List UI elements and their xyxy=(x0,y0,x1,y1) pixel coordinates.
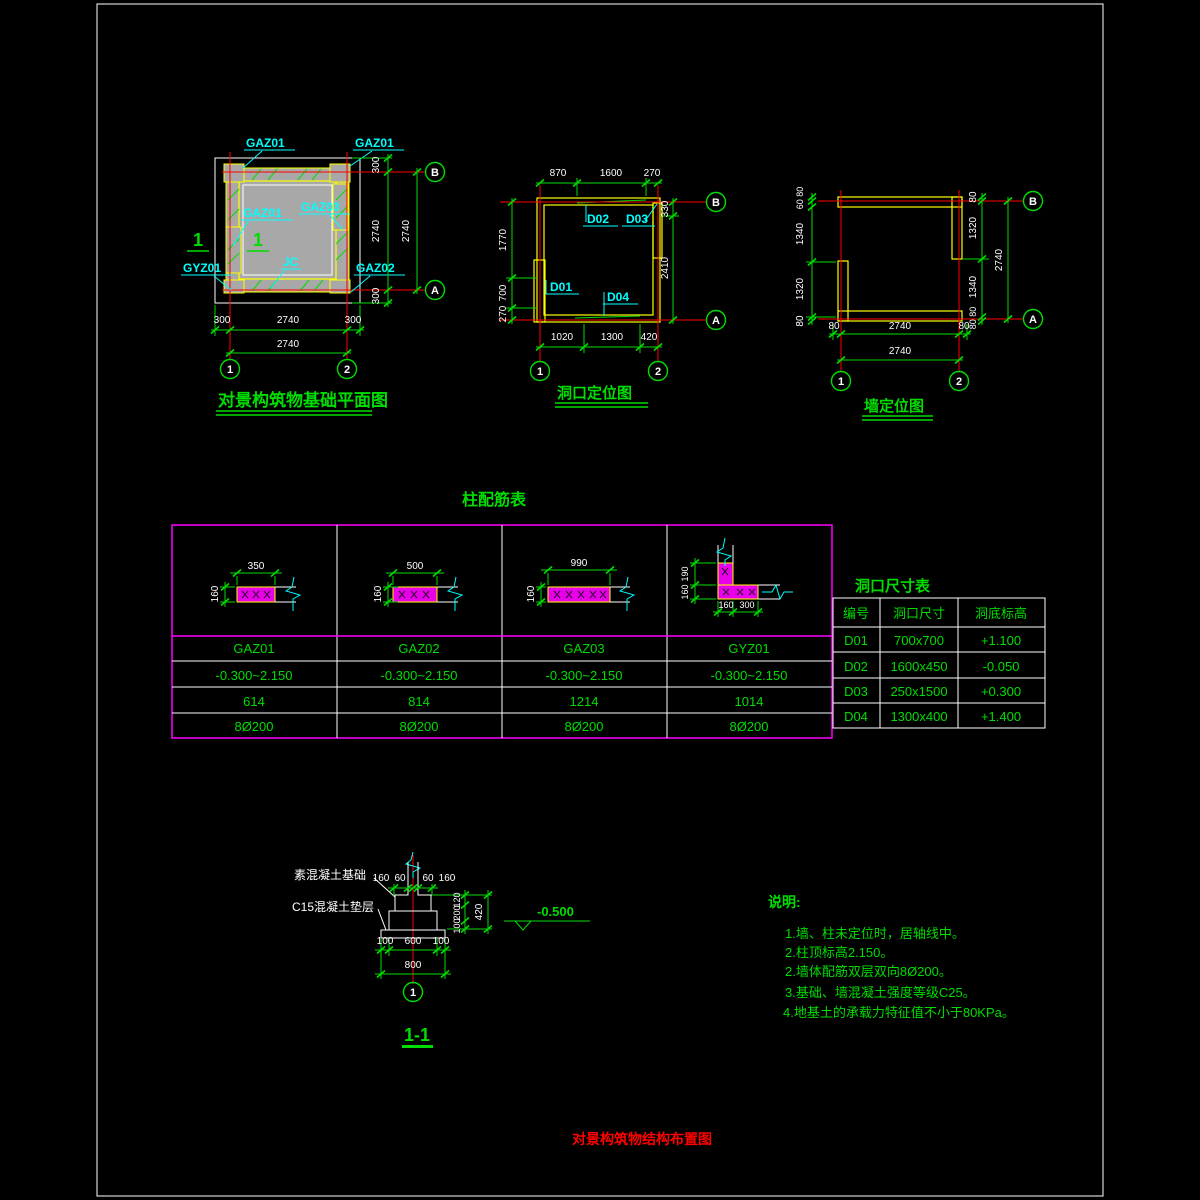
dim-top-1600: 1600 xyxy=(600,168,623,179)
note-item-2: 2.柱顶标高2.150。 xyxy=(785,945,893,960)
cell-name: GYZ01 xyxy=(728,641,769,656)
section-detail: 素混凝土基础 C15混凝土垫层 160 60 60 160 120 xyxy=(292,852,590,1048)
axis-1: 1 xyxy=(838,376,844,388)
cell-bars: 614 xyxy=(243,694,265,709)
dim-bot-420: 420 xyxy=(641,332,658,343)
cell-bars: 814 xyxy=(408,694,430,709)
column-table-title: 柱配筋表 xyxy=(462,490,527,509)
dim-420: 420 xyxy=(474,903,485,920)
label-gaz02: GAZ02 xyxy=(356,261,395,275)
dim-bot-300-r: 300 xyxy=(345,315,362,326)
dim-300: 300 xyxy=(739,600,754,610)
dim-right-80: 80 xyxy=(968,191,979,203)
dim-bot-2740: 2740 xyxy=(277,315,300,326)
dim-top-270: 270 xyxy=(644,168,661,179)
cell-bars: 1014 xyxy=(735,694,764,709)
opening-plan-title: 洞口定位图 xyxy=(557,384,632,402)
cell-stirrups: 8Ø200 xyxy=(729,719,768,734)
dim-100: 100 xyxy=(452,918,462,933)
axis-1: 1 xyxy=(537,366,543,378)
dim-left-1320: 1320 xyxy=(795,277,806,300)
header-size: 洞口尺寸 xyxy=(893,606,945,621)
opening-size-table: 洞口尺寸表 编号 洞口尺寸 洞底标高 D01 700x700 +1.100 D0… xyxy=(833,577,1045,728)
cell-elev: +1.400 xyxy=(981,709,1021,724)
section-title-underline xyxy=(402,1045,433,1048)
note-item-3: 2.墙体配筋双层双向8Ø200。 xyxy=(785,964,952,979)
cell-range: -0.300~2.150 xyxy=(381,668,458,683)
dim-left-60-80: 60 80 xyxy=(795,187,805,210)
dim-top-870: 870 xyxy=(550,168,567,179)
break-symbol xyxy=(286,577,300,611)
axis-b: B xyxy=(1029,196,1037,208)
cell-range: -0.300~2.150 xyxy=(546,668,623,683)
wall-plan: 60 80 1340 1320 80 80 1320 1340 80 80 27… xyxy=(795,187,1043,420)
dim-right-1340: 1340 xyxy=(968,275,979,298)
axis-lines xyxy=(818,190,1023,371)
cell-elev: -0.050 xyxy=(983,659,1020,674)
cell-size: 1300x400 xyxy=(890,709,947,724)
label-gyz01: GYZ01 xyxy=(183,261,221,275)
header-elev: 洞底标高 xyxy=(975,606,1027,621)
axis-a: A xyxy=(712,315,720,327)
break-symbol-right xyxy=(762,585,793,599)
dim-160-r: 160 xyxy=(439,873,456,884)
axis-1: 1 xyxy=(227,364,233,376)
dim-120: 120 xyxy=(452,892,462,907)
label-d02: D02 xyxy=(587,212,609,226)
foundation-plan: GAZ01 GAZ01 GAZ01 GAZ03 JC GYZ01 GAZ02 1… xyxy=(181,136,445,415)
label-d03: D03 xyxy=(626,212,648,226)
axis-a: A xyxy=(431,285,439,297)
label-gaz01-mid: GAZ01 xyxy=(243,206,282,220)
dim-190: 190 xyxy=(680,566,690,581)
dim-ticks xyxy=(377,885,492,978)
dim-right-330: 330 xyxy=(660,200,671,217)
note-item-5: 4.地基土的承载力特征值不小于80KPa。 xyxy=(783,1005,1015,1020)
wall-plan-title: 墙定位图 xyxy=(864,397,924,415)
dim-bot-300-l: 300 xyxy=(214,315,231,326)
label-jc: JC xyxy=(283,255,299,269)
cell-stirrups: 8Ø200 xyxy=(564,719,603,734)
dim-350: 350 xyxy=(248,561,265,572)
cad-drawing: GAZ01 GAZ01 GAZ01 GAZ03 JC GYZ01 GAZ02 1… xyxy=(0,0,1200,1200)
cell-id: D04 xyxy=(844,709,868,724)
cell-range: -0.300~2.150 xyxy=(711,668,788,683)
cell-range: -0.300~2.150 xyxy=(216,668,293,683)
label-gaz03: GAZ03 xyxy=(301,200,340,214)
cell-id: D03 xyxy=(844,684,868,699)
dim-bot-1300: 1300 xyxy=(601,332,624,343)
dim-left-270: 270 xyxy=(498,305,509,322)
label-d01: D01 xyxy=(550,280,572,294)
dim-left-700: 700 xyxy=(498,284,509,301)
cell-elev: +0.300 xyxy=(981,684,1021,699)
dim-right-2410: 2410 xyxy=(660,256,671,279)
break-symbol-top xyxy=(717,538,731,566)
note-item-1: 1.墙、柱未定位时，居轴线中。 xyxy=(785,926,965,941)
gyz01-diagram: 190 160 160 300 xyxy=(680,538,793,617)
dim-160h: 160 xyxy=(718,600,733,610)
notes-title: 说明: xyxy=(768,894,801,910)
header-id: 编号 xyxy=(843,606,869,621)
axis-bubbles: B A 1 2 xyxy=(832,192,1043,391)
dim-left-1770: 1770 xyxy=(498,228,509,251)
dim-160: 160 xyxy=(373,585,384,602)
label-leaders xyxy=(374,878,395,930)
notes: 说明: 1.墙、柱未定位时，居轴线中。 2.柱顶标高2.150。 2.墙体配筋双… xyxy=(768,894,1015,1020)
cell-size: 1600x450 xyxy=(890,659,947,674)
axis-1: 1 xyxy=(410,987,416,999)
dim-160: 160 xyxy=(210,585,221,602)
cell-id: D02 xyxy=(844,659,868,674)
gaz03-diagram: 990 160 xyxy=(526,558,634,611)
cell-size: 700x700 xyxy=(894,633,944,648)
column-table: 柱配筋表 350 160 xyxy=(172,490,832,738)
section-mark-1-left: 1 xyxy=(193,230,203,250)
dim-100-r: 100 xyxy=(433,936,450,947)
wall-segments xyxy=(838,197,962,321)
axis-a: A xyxy=(1029,314,1037,326)
axis-b: B xyxy=(431,167,439,179)
section-mark-1-inner: 1 xyxy=(253,230,263,250)
dim-right-2740: 2740 xyxy=(371,219,382,242)
level-text: -0.500 xyxy=(537,904,574,919)
dim-200: 200 xyxy=(452,905,462,920)
cell-stirrups: 8Ø200 xyxy=(399,719,438,734)
axis-2: 2 xyxy=(956,376,962,388)
dim-right-total: 2740 xyxy=(994,248,1005,271)
dim-100-l: 100 xyxy=(377,936,394,947)
axis-b: B xyxy=(712,197,720,209)
dim-left-80: 80 xyxy=(795,315,806,327)
cell-name: GAZ02 xyxy=(398,641,439,656)
dim-bot-total: 2740 xyxy=(889,346,912,357)
break-symbol xyxy=(448,577,462,611)
cell-bars: 1214 xyxy=(570,694,599,709)
cell-id: D01 xyxy=(844,633,868,648)
dim-bot-2740: 2740 xyxy=(889,321,912,332)
dim-500: 500 xyxy=(407,561,424,572)
dim-right-300-bot: 300 xyxy=(371,287,382,304)
dim-bot-80-l: 80 xyxy=(828,321,840,332)
dim-60-l: 60 xyxy=(394,873,406,884)
axis-2: 2 xyxy=(344,364,350,376)
cell-stirrups: 8Ø200 xyxy=(234,719,273,734)
sheet-title: 对景构筑物结构布置图 xyxy=(572,1131,712,1147)
label-cushion: C15混凝土垫层 xyxy=(292,899,374,914)
label-footing: 素混凝土基础 xyxy=(294,867,366,882)
label-d04: D04 xyxy=(607,290,629,304)
dim-right-total: 2740 xyxy=(401,219,412,242)
cell-name: GAZ03 xyxy=(563,641,604,656)
cell-elev: +1.100 xyxy=(981,633,1021,648)
dim-990: 990 xyxy=(571,558,588,569)
dim-800: 800 xyxy=(405,960,422,971)
dim-160: 160 xyxy=(680,584,690,599)
label-gaz01-top-left: GAZ01 xyxy=(246,136,285,150)
dim-bot-1020: 1020 xyxy=(551,332,574,343)
opening-plan: D02 D03 D01 D04 870 1600 270 1770 700 27… xyxy=(498,168,726,407)
note-item-4: 3.基础、墙混凝土强度等级C25。 xyxy=(785,985,976,1000)
dim-bot-80-r: 80 xyxy=(958,321,970,332)
dim-160: 160 xyxy=(526,585,537,602)
dim-60-r: 60 xyxy=(422,873,434,884)
dim-160-l: 160 xyxy=(373,873,390,884)
cad-drawing-canvas: GAZ01 GAZ01 GAZ01 GAZ03 JC GYZ01 GAZ02 1… xyxy=(0,0,1200,1200)
section-title: 1-1 xyxy=(404,1025,430,1045)
wall-band xyxy=(226,168,349,292)
opening-table-title: 洞口尺寸表 xyxy=(855,577,931,595)
dim-left-1340: 1340 xyxy=(795,222,806,245)
foundation-plan-title: 对景构筑物基础平面图 xyxy=(218,390,388,410)
cell-size: 250x1500 xyxy=(890,684,947,699)
axis-2: 2 xyxy=(655,366,661,378)
cell-name: GAZ01 xyxy=(233,641,274,656)
label-gaz01-top-right: GAZ01 xyxy=(355,136,394,150)
dim-right-1320: 1320 xyxy=(968,216,979,239)
dim-bot-total: 2740 xyxy=(277,339,300,350)
level-symbol xyxy=(515,921,531,930)
dim-right-300-top: 300 xyxy=(371,156,382,173)
dim-600: 600 xyxy=(405,936,422,947)
break-symbol xyxy=(620,577,634,611)
